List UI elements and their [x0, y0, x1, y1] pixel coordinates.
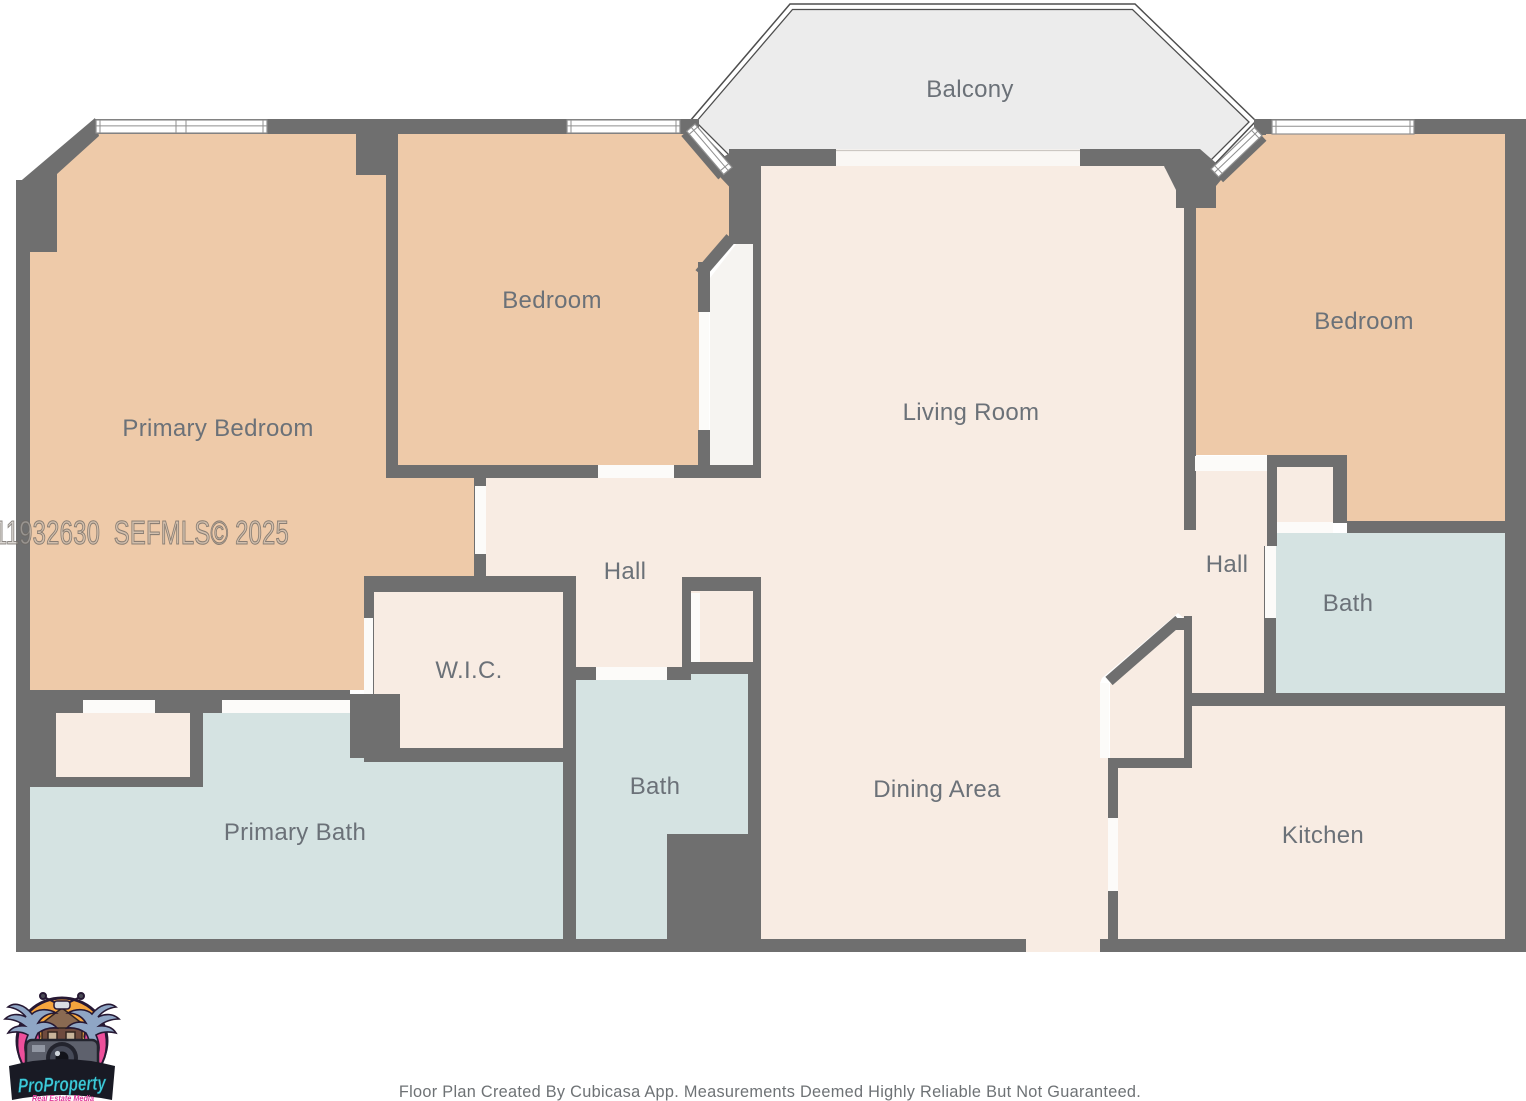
- svg-text:W.I.C.: W.I.C.: [435, 657, 502, 684]
- svg-text:Real Estate Media: Real Estate Media: [32, 1093, 94, 1101]
- svg-text:Bath: Bath: [630, 773, 681, 800]
- svg-text:Floor Plan Created By Cubicasa: Floor Plan Created By Cubicasa App. Meas…: [399, 1083, 1141, 1101]
- svg-text:Kitchen: Kitchen: [1282, 822, 1364, 849]
- svg-text:Bedroom: Bedroom: [502, 287, 601, 314]
- svg-text:Balcony: Balcony: [926, 76, 1013, 103]
- svg-text:Primary Bath: Primary Bath: [224, 819, 366, 846]
- svg-text:11932630 SEFMLS© 2025: 11932630 SEFMLS© 2025: [0, 514, 289, 551]
- svg-text:Bath: Bath: [1323, 590, 1374, 617]
- svg-text:Dining Area: Dining Area: [873, 776, 1001, 803]
- svg-text:Living Room: Living Room: [903, 399, 1040, 426]
- svg-text:Hall: Hall: [1206, 551, 1249, 578]
- svg-text:Primary Bedroom: Primary Bedroom: [122, 415, 313, 442]
- svg-text:Hall: Hall: [604, 558, 647, 585]
- svg-text:Bedroom: Bedroom: [1314, 308, 1413, 335]
